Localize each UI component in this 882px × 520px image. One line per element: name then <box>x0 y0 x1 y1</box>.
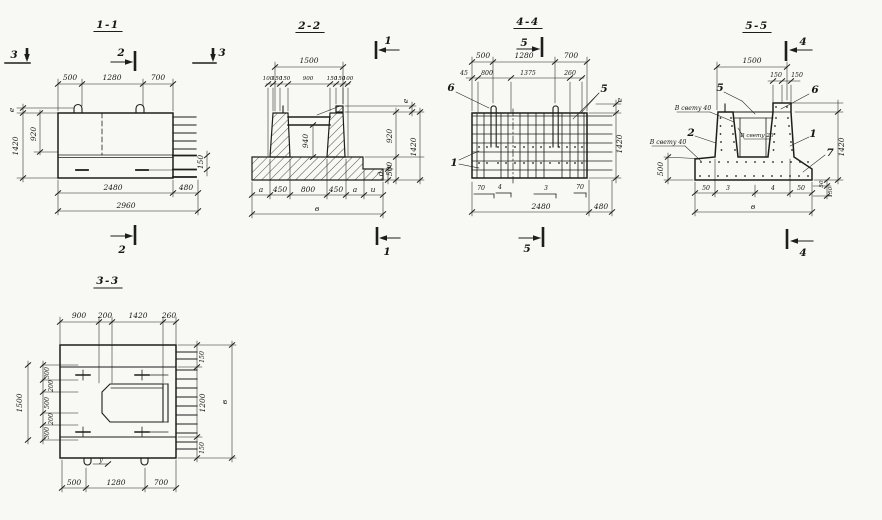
marker-label: 2 <box>117 244 125 256</box>
anchor-cross <box>76 370 149 437</box>
dim-50: 50 <box>702 185 710 192</box>
marker-label: 4 <box>799 36 806 48</box>
dim-260: 260 <box>563 70 576 77</box>
dim-150: 150 <box>199 442 206 454</box>
dim-940: 940 <box>301 122 316 159</box>
reinforcement-grid <box>472 106 612 183</box>
view-section-4-4: 4-4 5 5 500 1280 700 <box>447 16 624 255</box>
dim-70: 70 <box>477 185 485 192</box>
cutout-opening <box>102 384 163 422</box>
view-title: 1-1 <box>96 19 119 31</box>
view-section-2-2: 2-2 1 1 1500 <box>249 20 424 258</box>
dim-300: 300 <box>44 427 51 439</box>
lifting-loop <box>491 106 496 147</box>
dim-row-top: 500 1280 700 <box>55 73 176 111</box>
plan-body: у <box>60 345 176 467</box>
dim-45: 45 <box>459 70 468 77</box>
base-slab-hatched <box>252 157 383 180</box>
dim-u: у <box>98 457 103 464</box>
dim-right-1420: 1420 <box>792 100 846 184</box>
dim-corner: 50 150 <box>813 177 834 199</box>
marker-label: 4 <box>799 247 806 259</box>
marker-label: 5 <box>520 37 527 49</box>
dim-1420: 1420 <box>128 311 147 320</box>
section-marker-3-left: 3 <box>5 48 30 63</box>
lifting-loop <box>141 458 148 465</box>
dim-500: 500 <box>476 51 491 60</box>
dim-1420: 1420 <box>11 136 20 155</box>
dim-150: 150 <box>280 76 291 82</box>
marker-label: 2 <box>116 47 124 59</box>
dim-300: 300 <box>44 367 51 379</box>
lifting-loop <box>136 105 144 114</box>
dim-940-label: 940 <box>301 134 310 149</box>
protruding-rebar <box>173 117 196 177</box>
marker-label: 3 <box>218 47 225 59</box>
view-section-5-5: 5-5 4 4 1500 150 150 <box>649 20 846 259</box>
lifting-loop <box>84 458 91 465</box>
protruding-rebar <box>176 352 197 449</box>
callout-1: 1 <box>450 157 457 169</box>
element-body <box>58 105 173 179</box>
callout-6: 6 <box>447 82 455 94</box>
dim-e: е <box>7 107 16 112</box>
dim-e: е <box>401 98 410 103</box>
dim-500: 500 <box>67 478 82 487</box>
dim-row2: 150 150 <box>768 72 803 102</box>
section-marker-3-right: 3 <box>193 47 226 63</box>
dim-100: 100 <box>343 76 354 82</box>
left-wall-hatched <box>270 113 290 157</box>
dim-v-width: в <box>220 399 229 404</box>
dim-500: 500 <box>63 73 78 82</box>
lifting-loop <box>74 105 82 114</box>
dim-700: 700 <box>564 51 579 60</box>
dim-right-150: 150 <box>196 151 210 176</box>
label-clear-20: В свету 20 <box>739 133 773 139</box>
dim-e: е <box>615 97 624 102</box>
dim-1500-top: 1500 <box>714 56 790 110</box>
dim-left-500: 500 <box>656 153 696 184</box>
dim-1280: 1280 <box>106 478 125 487</box>
dim-500: 500 <box>385 162 394 177</box>
dim-2960: 2960 <box>115 201 135 210</box>
dim-col-left: е 920 1420 <box>7 104 74 182</box>
dim-rows-bottom: 2480 480 2960 <box>55 180 201 215</box>
mark-4: 4 <box>497 184 502 191</box>
dim-1280: 1280 <box>514 51 533 60</box>
dim-1420: 1420 <box>615 134 624 153</box>
dim-2480: 2480 <box>102 183 122 192</box>
dim-50: 50 <box>797 185 805 192</box>
dim-920: 920 <box>29 127 38 142</box>
section-marker-2-top: 2 <box>111 47 135 71</box>
label-clear-40: В свету 40 <box>649 139 687 146</box>
callout-5: 5 <box>600 83 607 95</box>
dim-700: 700 <box>151 73 166 82</box>
dim-2480: 2480 <box>530 202 550 211</box>
cross-section-geometry <box>252 106 383 180</box>
callouts: 5 6 В свету 40 2 В свету 40 В свету 20 1… <box>649 82 835 172</box>
label-clear-40: В свету 40 <box>674 105 712 112</box>
dim-50: 50 <box>819 180 825 188</box>
dim-row-top: 900 200 1420 260 <box>57 311 179 383</box>
section-marker-2-bottom: 2 <box>111 225 135 256</box>
dim-70: 70 <box>576 184 584 191</box>
dim-d: д <box>376 171 385 176</box>
dim-rows-bottom: 70 4 3 70 2480 480 <box>469 180 615 216</box>
mark-4: 4 <box>770 185 775 192</box>
section-marker-1-bottom: 1 <box>377 227 400 258</box>
dim-200: 200 <box>97 311 113 320</box>
dim-150: 150 <box>770 72 782 79</box>
section-marker-5-bottom: 5 <box>519 227 543 255</box>
callout-1: 1 <box>809 128 816 140</box>
view-title: 3-3 <box>96 275 119 287</box>
dim-row-bottom: 500 1280 700 <box>59 460 179 492</box>
dim-v-width: в <box>751 202 756 211</box>
dim-rows-bottom: 50 3 4 50 в <box>692 159 815 216</box>
dim-450: 450 <box>328 185 344 194</box>
callout-5: 5 <box>716 82 723 94</box>
dim-1500: 1500 <box>299 56 318 65</box>
dim-200: 200 <box>48 413 55 426</box>
section-marker-4-bottom: 4 <box>787 229 813 259</box>
dim-150: 150 <box>199 351 206 363</box>
view-plan-3-3: 3-3 900 200 1420 260 <box>15 275 236 492</box>
dim-1500-top: 1500 <box>272 56 346 111</box>
dim-150: 150 <box>828 186 834 197</box>
dim-1200: 1200 <box>198 393 207 412</box>
marker-label: 1 <box>384 35 391 47</box>
structural-drawing-sheet: 1-1 3 3 2 2 <box>0 0 882 520</box>
dim-i: и <box>371 185 376 194</box>
view-title: 4-4 <box>516 16 539 28</box>
dim-920: 920 <box>385 129 394 144</box>
marker-label: 1 <box>383 246 390 258</box>
callout-6: 6 <box>811 84 819 96</box>
marker-label: 5 <box>523 243 530 255</box>
dim-900: 900 <box>303 76 314 82</box>
dim-800: 800 <box>301 185 316 194</box>
dim-450: 450 <box>272 185 288 194</box>
dim-1280: 1280 <box>102 73 121 82</box>
right-wall-hatched <box>327 113 345 157</box>
dim-800: 800 <box>481 70 493 77</box>
section-marker-4-top: 4 <box>786 36 812 61</box>
dim-v-width: в <box>315 204 320 213</box>
dim-500: 500 <box>44 397 51 409</box>
dim-1420: 1420 <box>409 137 418 156</box>
marker-label: 3 <box>10 49 17 61</box>
dim-200: 200 <box>48 380 55 393</box>
dim-a: а <box>353 185 357 194</box>
dim-row-top: 500 1280 700 <box>469 51 590 111</box>
mark-3: 3 <box>544 185 548 192</box>
lifting-loop <box>553 106 558 147</box>
section-marker-1-top: 1 <box>376 35 399 59</box>
mark-3: 3 <box>726 185 730 192</box>
dim-row2: 45 800 1375 260 <box>459 70 585 112</box>
dim-1375: 1375 <box>520 70 536 77</box>
dim-1500: 1500 <box>742 56 761 65</box>
callout-7: 7 <box>826 147 834 159</box>
dim-150: 150 <box>196 155 205 170</box>
view-title: 2-2 <box>297 20 321 32</box>
view-section-1-1: 1-1 3 3 2 2 <box>5 19 226 256</box>
dim-480: 480 <box>593 202 609 211</box>
dim-150: 150 <box>791 72 803 79</box>
dim-480: 480 <box>178 183 194 192</box>
view-title: 5-5 <box>745 20 768 32</box>
dim-1420: 1420 <box>837 137 846 156</box>
dim-700: 700 <box>154 478 169 487</box>
dim-a: а <box>259 185 263 194</box>
dim-900: 900 <box>72 311 87 320</box>
section-geometry <box>695 103 812 180</box>
dim-260: 260 <box>161 311 177 320</box>
dim-1500: 1500 <box>15 393 24 412</box>
dim-col-left: 1500 300 200 500 200 300 <box>15 361 78 444</box>
callout-2: 2 <box>686 127 694 139</box>
dim-500: 500 <box>656 162 665 177</box>
